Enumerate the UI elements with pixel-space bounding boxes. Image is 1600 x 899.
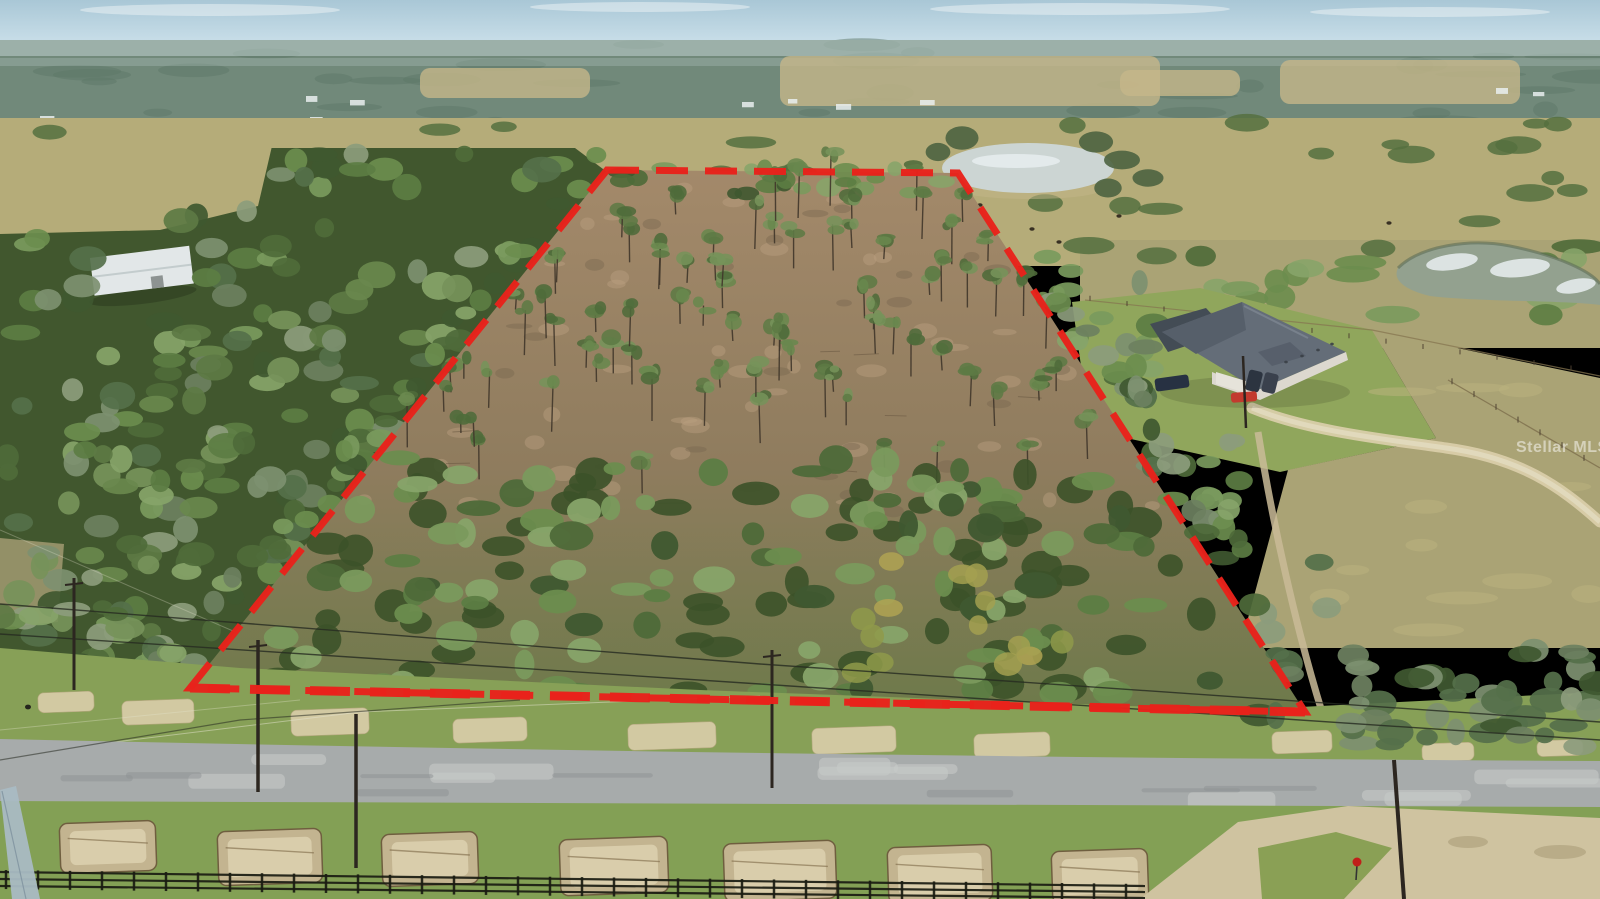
stop-sign: [1353, 858, 1362, 867]
aerial-photo: Stellar MLS: [0, 0, 1600, 899]
aerial-photo-canvas: [0, 0, 1600, 899]
distant-landscape: [0, 38, 1600, 132]
sky: [0, 0, 1600, 46]
foreground-strip: [0, 801, 1600, 899]
